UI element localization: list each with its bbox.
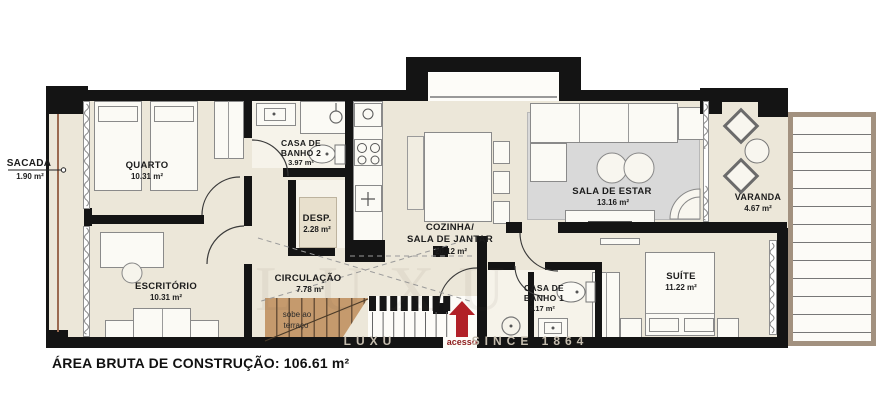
faucet-icon xyxy=(363,109,373,119)
room-label-banho1-line1: CASA DE xyxy=(524,283,564,293)
toilet-dot xyxy=(326,153,329,156)
room-area-quarto: 10.31 m² xyxy=(131,172,163,181)
burner-icon xyxy=(371,156,379,164)
room-area-banho1: 3.17 m² xyxy=(529,304,555,313)
room-area-sala: 13.16 m² xyxy=(597,198,629,207)
room-area-banho2: 3.97 m² xyxy=(288,158,314,167)
burner-icon xyxy=(358,144,367,153)
room-label-sala: SALA DE ESTAR xyxy=(572,186,651,197)
pouf xyxy=(624,153,654,183)
gross-area-text: ÁREA BRUTA DE CONSTRUÇÃO: 106.61 m² xyxy=(52,355,349,371)
window-squiggle xyxy=(770,243,774,333)
window-squiggle xyxy=(85,228,89,334)
room-label-escritorio: ESCRITÓRIO xyxy=(135,281,197,292)
burner-icon xyxy=(358,156,366,164)
room-label-sacada: SACADA xyxy=(7,158,52,169)
room-label-cozinha-line1: COZINHA/ xyxy=(426,222,474,233)
room-label-banho2-line1: CASA DE xyxy=(281,138,321,148)
room-label-banho2-line2: BANHO 2 xyxy=(281,148,321,158)
basin-dot xyxy=(273,113,276,116)
room-area-suite: 11.22 m² xyxy=(665,283,697,292)
watermark-fragment-2: SINCE 1864 xyxy=(472,334,589,348)
pouf xyxy=(597,153,627,183)
window-squiggle xyxy=(704,186,708,220)
toilet-tank xyxy=(586,282,595,302)
basin-dot xyxy=(552,327,555,330)
shower-head-icon xyxy=(330,111,342,123)
door-arc-escritorio xyxy=(207,226,244,264)
window-squiggle xyxy=(704,104,708,148)
room-area-sacada: 1.90 m² xyxy=(16,172,44,181)
toilet-tank xyxy=(335,145,345,164)
room-area-desp: 2.28 m² xyxy=(303,225,331,234)
room-label-suite: SUÍTE xyxy=(666,271,695,282)
toilet-dot xyxy=(576,291,579,294)
floor-plan: SACADA 1.90 m² QUARTO 10.31 m² CASA DE B… xyxy=(0,0,895,414)
desk-chair xyxy=(122,263,142,283)
watermark-fragment-1: LUXU xyxy=(344,334,397,348)
room-label-quarto: QUARTO xyxy=(126,160,169,171)
watermark-ghost: LUXU xyxy=(255,252,529,326)
room-label-desp: DESP. xyxy=(303,213,332,224)
window-squiggle xyxy=(85,104,89,206)
door-arc-quarto xyxy=(202,177,240,215)
sacada-leader-dot xyxy=(61,168,65,172)
room-label-varanda: VARANDA xyxy=(735,192,781,202)
room-label-banho1-line2: BANHO 1 xyxy=(524,293,564,303)
room-label-cozinha-line2: SALA DE JANTAR xyxy=(407,234,493,245)
burner-icon xyxy=(371,144,380,153)
sink-cross-icon xyxy=(361,192,375,206)
balcony-table xyxy=(745,139,769,163)
corner-chair xyxy=(670,189,700,219)
room-area-escritorio: 10.31 m² xyxy=(150,293,182,302)
room-area-varanda: 4.67 m² xyxy=(744,204,772,213)
